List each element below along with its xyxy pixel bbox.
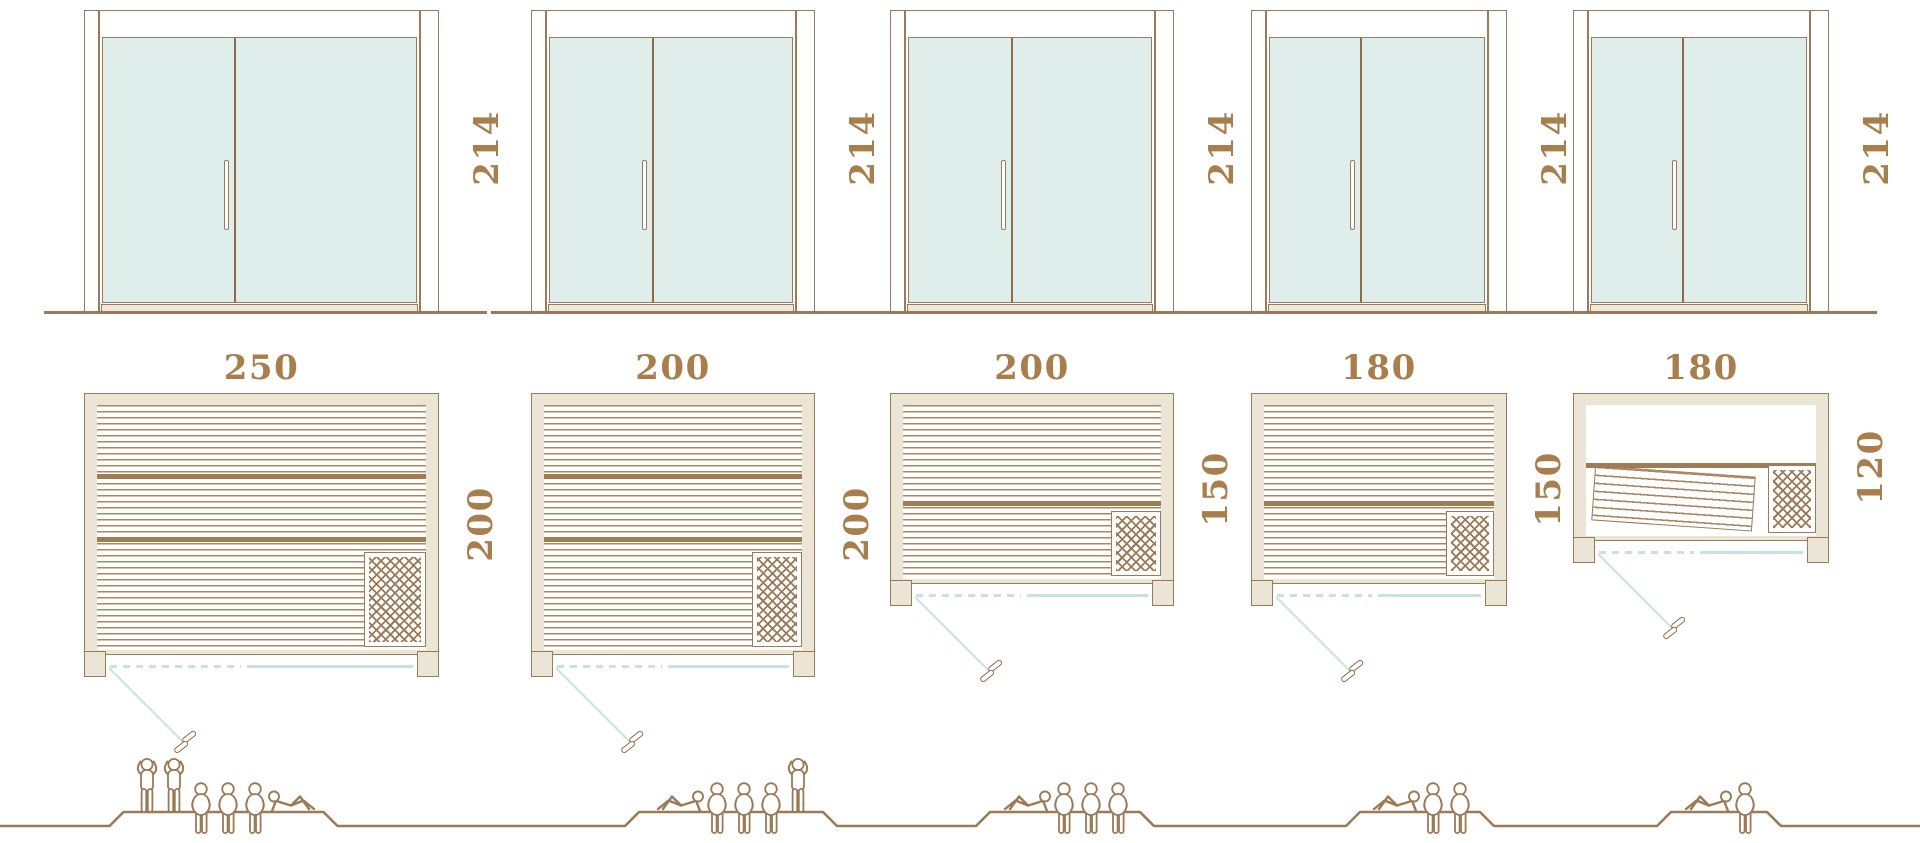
handle-capsule-bottom xyxy=(1340,669,1356,683)
elevation-ground-line xyxy=(491,311,863,314)
door-lintel xyxy=(1267,11,1487,37)
door-handle xyxy=(1672,160,1677,230)
corner-post-right xyxy=(1485,580,1507,606)
depth-label: 150 xyxy=(1196,451,1236,526)
heater xyxy=(1768,465,1816,533)
floor-plan xyxy=(84,393,439,677)
door-front-dashed-line xyxy=(916,594,1021,597)
glass-panel xyxy=(908,37,1152,303)
floor-plan xyxy=(1251,393,1507,606)
door-left-post xyxy=(84,10,99,314)
door-elevation xyxy=(890,10,1174,314)
heater xyxy=(1446,511,1494,576)
door-front-dashed-line xyxy=(557,665,662,668)
elevation-ground-line xyxy=(850,311,1222,314)
corner-post-left xyxy=(84,651,106,677)
person-sitting-icon xyxy=(186,782,216,834)
heater-grill xyxy=(369,557,421,642)
person-sitting-icon xyxy=(1103,782,1133,834)
door-front-line xyxy=(1700,551,1803,554)
plan-decking-upper xyxy=(1586,405,1816,463)
heater-grill xyxy=(757,557,797,642)
person-sitting-icon xyxy=(213,782,243,834)
corner-post-right xyxy=(417,651,439,677)
sauna-dimension-diagram: 214250200 xyxy=(0,0,1920,843)
person-standing-icon xyxy=(159,757,189,813)
person-sitting-icon xyxy=(702,782,732,834)
width-label: 250 xyxy=(224,348,299,388)
corner-post-right xyxy=(1152,580,1174,606)
corner-post-right xyxy=(793,651,815,677)
heater xyxy=(1111,511,1161,576)
person-sitting-icon xyxy=(729,782,759,834)
heater xyxy=(364,552,426,647)
depth-label: 120 xyxy=(1851,429,1891,504)
corner-post-left xyxy=(1251,580,1273,606)
person-lying-icon xyxy=(1681,788,1733,814)
width-label: 180 xyxy=(1663,348,1738,388)
person-sitting-icon xyxy=(1730,782,1760,834)
door-front-dashed-line xyxy=(1599,551,1694,554)
bench-band xyxy=(97,537,426,542)
person-standing-icon xyxy=(783,757,813,813)
door-elevation xyxy=(1251,10,1507,314)
glass-panel xyxy=(102,37,417,303)
door-left-post xyxy=(1251,10,1266,314)
door-front-dashed-line xyxy=(110,665,241,668)
plan-decking xyxy=(544,405,802,650)
door-front-line xyxy=(247,665,413,668)
door-swing-handle-icon xyxy=(1340,662,1366,686)
person-sitting-icon xyxy=(240,782,270,834)
handle-capsule-bottom xyxy=(620,740,636,754)
door-right-post xyxy=(1488,10,1507,314)
door-handle xyxy=(1350,160,1355,230)
tilted-bench xyxy=(1591,465,1755,531)
door-right-post xyxy=(1810,10,1829,314)
door-divider xyxy=(1360,38,1362,302)
height-label: 214 xyxy=(467,110,507,185)
door-handle xyxy=(1001,160,1006,230)
door-frame xyxy=(1266,10,1488,314)
plan-decking xyxy=(1586,405,1816,536)
door-front-dashed-line xyxy=(1277,594,1372,597)
door-swing-handle-icon xyxy=(620,733,646,757)
door-frame xyxy=(1588,10,1810,314)
door-handle xyxy=(224,160,229,230)
glass-panel xyxy=(1269,37,1485,303)
door-frame xyxy=(546,10,796,314)
elevation-ground-line xyxy=(1211,311,1555,314)
width-label: 200 xyxy=(994,348,1069,388)
bench-band xyxy=(903,501,1161,506)
person-sitting-icon xyxy=(1445,782,1475,834)
floor-plan xyxy=(531,393,815,677)
door-lintel xyxy=(100,11,419,37)
plan-decking xyxy=(903,405,1161,579)
glass-panel xyxy=(549,37,793,303)
height-label: 214 xyxy=(1535,110,1575,185)
door-divider xyxy=(652,38,654,302)
door-lintel xyxy=(547,11,795,37)
handle-capsule-bottom xyxy=(979,669,995,683)
depth-label: 200 xyxy=(461,486,501,561)
person-sitting-icon xyxy=(756,782,786,834)
door-swing-handle-icon xyxy=(979,662,1005,686)
door-swing-handle-icon xyxy=(173,733,199,757)
elevation-ground-line xyxy=(44,311,487,314)
corner-post-right xyxy=(1807,537,1829,563)
elevation-ground-line xyxy=(1533,311,1877,314)
door-divider xyxy=(1011,38,1013,302)
bench-band xyxy=(97,474,426,479)
door-elevation xyxy=(1573,10,1829,314)
height-label: 214 xyxy=(843,110,883,185)
person-sitting-icon xyxy=(1049,782,1079,834)
bench-band xyxy=(1264,501,1494,506)
door-elevation xyxy=(531,10,815,314)
person-sitting-icon xyxy=(1076,782,1106,834)
corner-post-left xyxy=(890,580,912,606)
door-lintel xyxy=(1589,11,1809,37)
depth-label: 200 xyxy=(837,486,877,561)
width-label: 200 xyxy=(635,348,710,388)
door-front-line xyxy=(668,665,789,668)
heater-grill xyxy=(1773,470,1811,528)
person-sitting-icon xyxy=(1418,782,1448,834)
door-elevation xyxy=(84,10,439,314)
door-frame xyxy=(905,10,1155,314)
handle-capsule-bottom xyxy=(173,740,189,754)
floor-plan xyxy=(890,393,1174,606)
heater-grill xyxy=(1116,516,1156,571)
door-right-post xyxy=(796,10,815,314)
door-swing-handle-icon xyxy=(1662,619,1688,643)
person-standing-icon xyxy=(132,757,162,813)
door-left-post xyxy=(531,10,546,314)
door-left-post xyxy=(890,10,905,314)
bench-band xyxy=(544,537,802,542)
handle-capsule-bottom xyxy=(1662,626,1678,640)
door-front-line xyxy=(1378,594,1481,597)
door-divider xyxy=(234,38,236,302)
person-lying-icon xyxy=(653,788,705,814)
door-right-post xyxy=(420,10,439,314)
door-left-post xyxy=(1573,10,1588,314)
height-label: 214 xyxy=(1857,110,1897,185)
heater-grill xyxy=(1451,516,1489,571)
door-frame xyxy=(99,10,420,314)
door-front-line xyxy=(1027,594,1148,597)
door-right-post xyxy=(1155,10,1174,314)
floor-plan xyxy=(1573,393,1829,563)
corner-post-left xyxy=(1573,537,1595,563)
height-label: 214 xyxy=(1202,110,1242,185)
glass-panel xyxy=(1591,37,1807,303)
plan-decking xyxy=(97,405,426,650)
corner-post-left xyxy=(531,651,553,677)
heater xyxy=(752,552,802,647)
door-handle xyxy=(642,160,647,230)
bench-band xyxy=(544,474,802,479)
person-lying-icon xyxy=(267,788,319,814)
plan-decking xyxy=(1264,405,1494,579)
door-divider xyxy=(1682,38,1684,302)
width-label: 180 xyxy=(1341,348,1416,388)
depth-label: 150 xyxy=(1529,451,1569,526)
person-lying-icon xyxy=(1369,788,1421,814)
door-lintel xyxy=(906,11,1154,37)
person-lying-icon xyxy=(1000,788,1052,814)
